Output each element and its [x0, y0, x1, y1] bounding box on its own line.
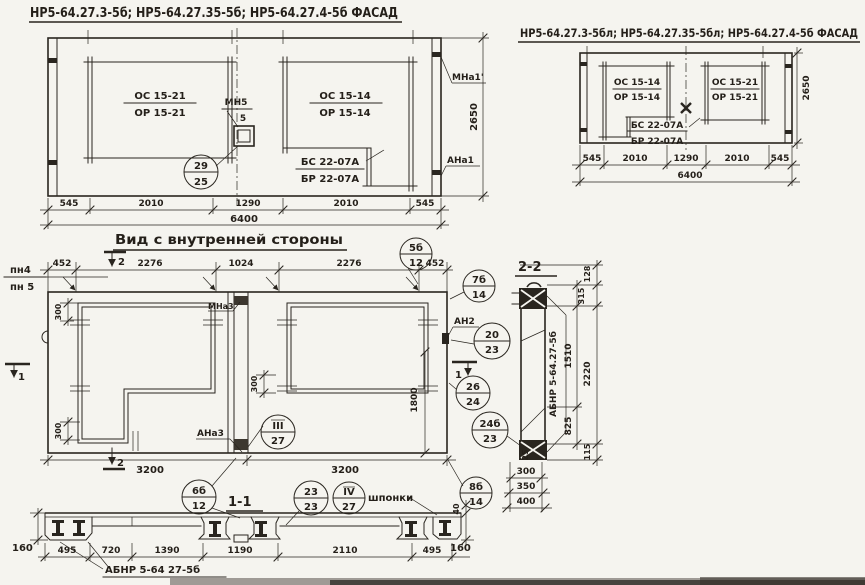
- ana1-label: АНа1: [447, 156, 474, 166]
- section-2-2-body: [512, 283, 547, 460]
- dim-1510: 1510: [564, 343, 574, 368]
- dim-720: 720: [102, 546, 121, 556]
- dim-1024: 1024: [228, 259, 253, 269]
- section-2-2-stack-dims: 300 350 400: [502, 462, 552, 512]
- svg-text:III: III: [272, 421, 283, 432]
- facade-front-view: НР5-64.27.3-5б; НР5-64.27.35-5б; НР5-64.…: [29, 6, 489, 229]
- blueprint-svg: НР5-64.27.3-5б; НР5-64.27.35-5б; НР5-64.…: [0, 0, 865, 585]
- abnr-label: АБНР 5-64.27-5б: [548, 331, 559, 417]
- svg-text:20: 20: [485, 330, 499, 341]
- dim-2276: 2276: [137, 259, 162, 269]
- svg-text:6б: 6б: [192, 485, 206, 497]
- svg-text:12: 12: [192, 501, 206, 512]
- dim-115: 115: [583, 443, 592, 460]
- section-1-mark: 1: [18, 372, 25, 383]
- section-2-2: 2-2 АБНР 5-64.27-5б 315 1510 825: [502, 260, 603, 512]
- dim-2650: 2650: [469, 103, 480, 131]
- svg-text:27: 27: [342, 502, 356, 513]
- facade-left-title: НР5-64.27.3-5б; НР5-64.27.35-5б; НР5-64.…: [30, 6, 398, 21]
- dim-128: 128: [583, 265, 592, 282]
- dim-495: 495: [58, 546, 77, 556]
- section-2-cut-marker-bottom: 2: [103, 448, 125, 469]
- pn-mark: пн4 пн 5: [4, 265, 108, 293]
- callout-20-23: 20 23: [451, 323, 510, 359]
- section-1-1-title: 1-1: [228, 495, 252, 510]
- inner-side-view: Вид с внутренней стороны пн4 пн 5 452 22…: [4, 233, 521, 518]
- svg-text:14: 14: [472, 290, 486, 301]
- svg-text:7б: 7б: [472, 274, 486, 286]
- svg-text:27: 27: [271, 436, 285, 447]
- dim-6400: 6400: [677, 171, 702, 181]
- section-1-1: 1-1 23 23 IV 27 шпонки: [12, 481, 474, 577]
- dim-545: 545: [416, 199, 435, 209]
- callout-7b-14: 7б 14: [450, 270, 495, 302]
- facade-right-window-right: ОС 15-21 ОР 15-21: [701, 62, 769, 124]
- callout-III-27: III 27: [248, 415, 295, 449]
- drawing-sheet: НР5-64.27.3-5б; НР5-64.27.35-5б; НР5-64.…: [0, 0, 865, 585]
- dim-40: 40: [452, 503, 461, 515]
- callout-24b-23: 24б 23: [472, 412, 521, 448]
- svg-text:8б: 8б: [469, 481, 483, 493]
- an2-label: АН2: [447, 317, 479, 338]
- svg-text:IV: IV: [343, 487, 355, 498]
- dim-452: 452: [53, 259, 72, 269]
- facade-left-mn5-detail: МН5 5: [222, 98, 254, 146]
- dim-2276: 2276: [336, 259, 361, 269]
- callout-29-25: 29 25: [184, 146, 238, 189]
- callout-IV-27: IV 27: [333, 482, 365, 514]
- pn-num: пн4: [10, 265, 31, 276]
- dim-545: 545: [771, 154, 790, 164]
- dim-3200: 3200: [331, 465, 359, 476]
- window-mark-den: ОР 15-21: [134, 108, 185, 119]
- svg-text:300: 300: [54, 303, 63, 320]
- section-2-2-title: 2-2: [518, 260, 542, 275]
- leader-arrows: [63, 277, 418, 290]
- dim-315: 315: [577, 287, 586, 304]
- ana3-label: АНа3: [197, 429, 224, 439]
- dim-2010: 2010: [622, 154, 647, 164]
- inner-dims-top: 452 2276 1024 2276 452: [40, 259, 453, 292]
- section-1-1-body: [45, 513, 461, 542]
- inner-panel-outline: [42, 292, 449, 453]
- dim-2010: 2010: [724, 154, 749, 164]
- svg-text:14: 14: [469, 497, 483, 508]
- pn-den: пн 5: [10, 282, 34, 293]
- window-mark-den: ОР 15-21: [712, 93, 758, 103]
- dim-6400: 6400: [230, 214, 258, 225]
- svg-text:АН2: АН2: [454, 317, 475, 327]
- callout-26-24: 26 24: [449, 376, 490, 410]
- beam-den: БР 22-07А: [631, 137, 683, 147]
- svg-text:24: 24: [466, 397, 480, 408]
- facade-front-view-mirrored: НР5-64.27.3-5бл; НР5-64.27.35-5бл; НР5-6…: [518, 26, 860, 186]
- facade-left-dim-height: 2650: [441, 32, 489, 202]
- window-mark-den: ОР 15-14: [319, 108, 370, 119]
- section-1-mark: 1: [455, 370, 462, 381]
- dim-300: 300: [517, 467, 536, 477]
- svg-text:24б: 24б: [480, 418, 501, 430]
- dim-25: 25: [521, 449, 530, 461]
- window-mark-num: ОС 15-14: [614, 78, 660, 88]
- svg-text:26: 26: [466, 382, 480, 393]
- section-2-cut-marker-top: 2: [104, 252, 126, 268]
- section-2-mark: 2: [118, 257, 125, 268]
- facade-left-window-right: ОС 15-14 ОР 15-14: [279, 57, 417, 191]
- section-2-mark: 2: [117, 458, 124, 469]
- scan-smudges: [170, 577, 865, 585]
- beam-den: БР 22-07А: [301, 174, 359, 185]
- inner-window-right: [277, 303, 438, 393]
- facade-left-dims-bottom: 545 2010 1290 2010 545 6400: [40, 198, 449, 229]
- facade-left-window-left: ОС 15-21 ОР 15-21: [84, 57, 236, 163]
- inner-dims-bottom: 3200 3200: [40, 455, 456, 476]
- dim-1390: 1390: [154, 546, 179, 556]
- facade-right-panel-outline: [580, 46, 792, 150]
- dim-545: 545: [583, 154, 602, 164]
- inner-view-title: Вид с внутренней стороны: [115, 233, 343, 248]
- dim-1800: 1800: [410, 387, 420, 412]
- window-mark-den: ОР 15-14: [614, 93, 660, 103]
- svg-text:23: 23: [485, 345, 499, 356]
- facade-right-title: НР5-64.27.3-5бл; НР5-64.27.35-5бл; НР5-6…: [520, 26, 858, 40]
- dim-400: 400: [517, 497, 536, 507]
- svg-text:23: 23: [304, 502, 318, 513]
- mna1-label: МНа1': [452, 73, 484, 83]
- inner-1800-dim: 1800: [410, 348, 429, 457]
- dim-300: 300: [250, 375, 259, 392]
- dim-160: 160: [450, 543, 471, 554]
- beam-num: БС 22-07А: [301, 157, 359, 168]
- svg-text:23: 23: [304, 487, 318, 498]
- dim-300: 300: [54, 422, 63, 439]
- svg-text:12: 12: [409, 258, 423, 269]
- dim-2010: 2010: [138, 199, 163, 209]
- dim-2220: 2220: [583, 361, 593, 386]
- beam-num: БС 22-07А: [631, 121, 683, 131]
- mn5-label: МН5: [225, 98, 248, 108]
- dim-350: 350: [517, 482, 536, 492]
- mn5-den: 5: [240, 114, 246, 124]
- svg-text:шпонки: шпонки: [368, 493, 413, 504]
- callout-den: 25: [194, 177, 208, 188]
- dim-495: 495: [423, 546, 442, 556]
- dim-160: 160: [12, 543, 33, 554]
- window-mark-num: ОС 15-21: [712, 78, 758, 88]
- dim-1290: 1290: [673, 154, 698, 164]
- facade-right-dims: 545 2010 1290 2010 545 6400 2650: [572, 47, 812, 186]
- callout-num: 29: [194, 161, 208, 172]
- svg-text:АБНР 5-64 27-5б: АБНР 5-64 27-5б: [105, 564, 200, 576]
- mna3-label: МНа3: [208, 302, 234, 311]
- dim-2010: 2010: [333, 199, 358, 209]
- dim-825: 825: [564, 417, 574, 436]
- dim-1290: 1290: [235, 199, 260, 209]
- dim-2650: 2650: [802, 75, 812, 100]
- dim-3200: 3200: [136, 465, 164, 476]
- dim-1190: 1190: [227, 546, 252, 556]
- window-mark-num: ОС 15-14: [319, 91, 370, 102]
- callout-23-23: 23 23: [286, 481, 328, 525]
- section-1-cut-marker-left: 1: [5, 364, 30, 383]
- shponki-label: шпонки: [368, 493, 437, 515]
- inner-mid-column: МНа3 АНа3: [196, 292, 248, 453]
- window-mark-num: ОС 15-21: [134, 91, 185, 102]
- svg-text:23: 23: [483, 434, 497, 445]
- dim-545: 545: [60, 199, 79, 209]
- svg-text:5б: 5б: [409, 242, 423, 254]
- dim-2110: 2110: [332, 546, 357, 556]
